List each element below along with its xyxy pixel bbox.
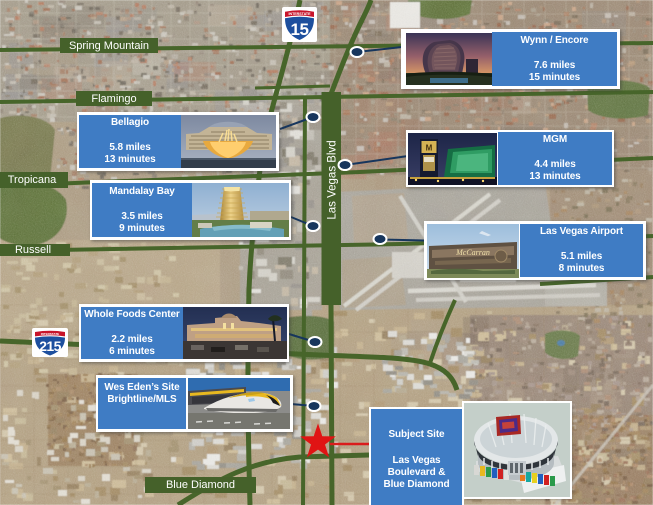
- svg-text:INTERSTATE: INTERSTATE: [288, 12, 311, 16]
- svg-text:INTERSTATE: INTERSTATE: [41, 332, 59, 336]
- svg-text:McCarran: McCarran: [455, 248, 490, 257]
- svg-text:215: 215: [39, 338, 61, 354]
- svg-text:15: 15: [291, 20, 309, 39]
- svg-text:M: M: [426, 144, 433, 153]
